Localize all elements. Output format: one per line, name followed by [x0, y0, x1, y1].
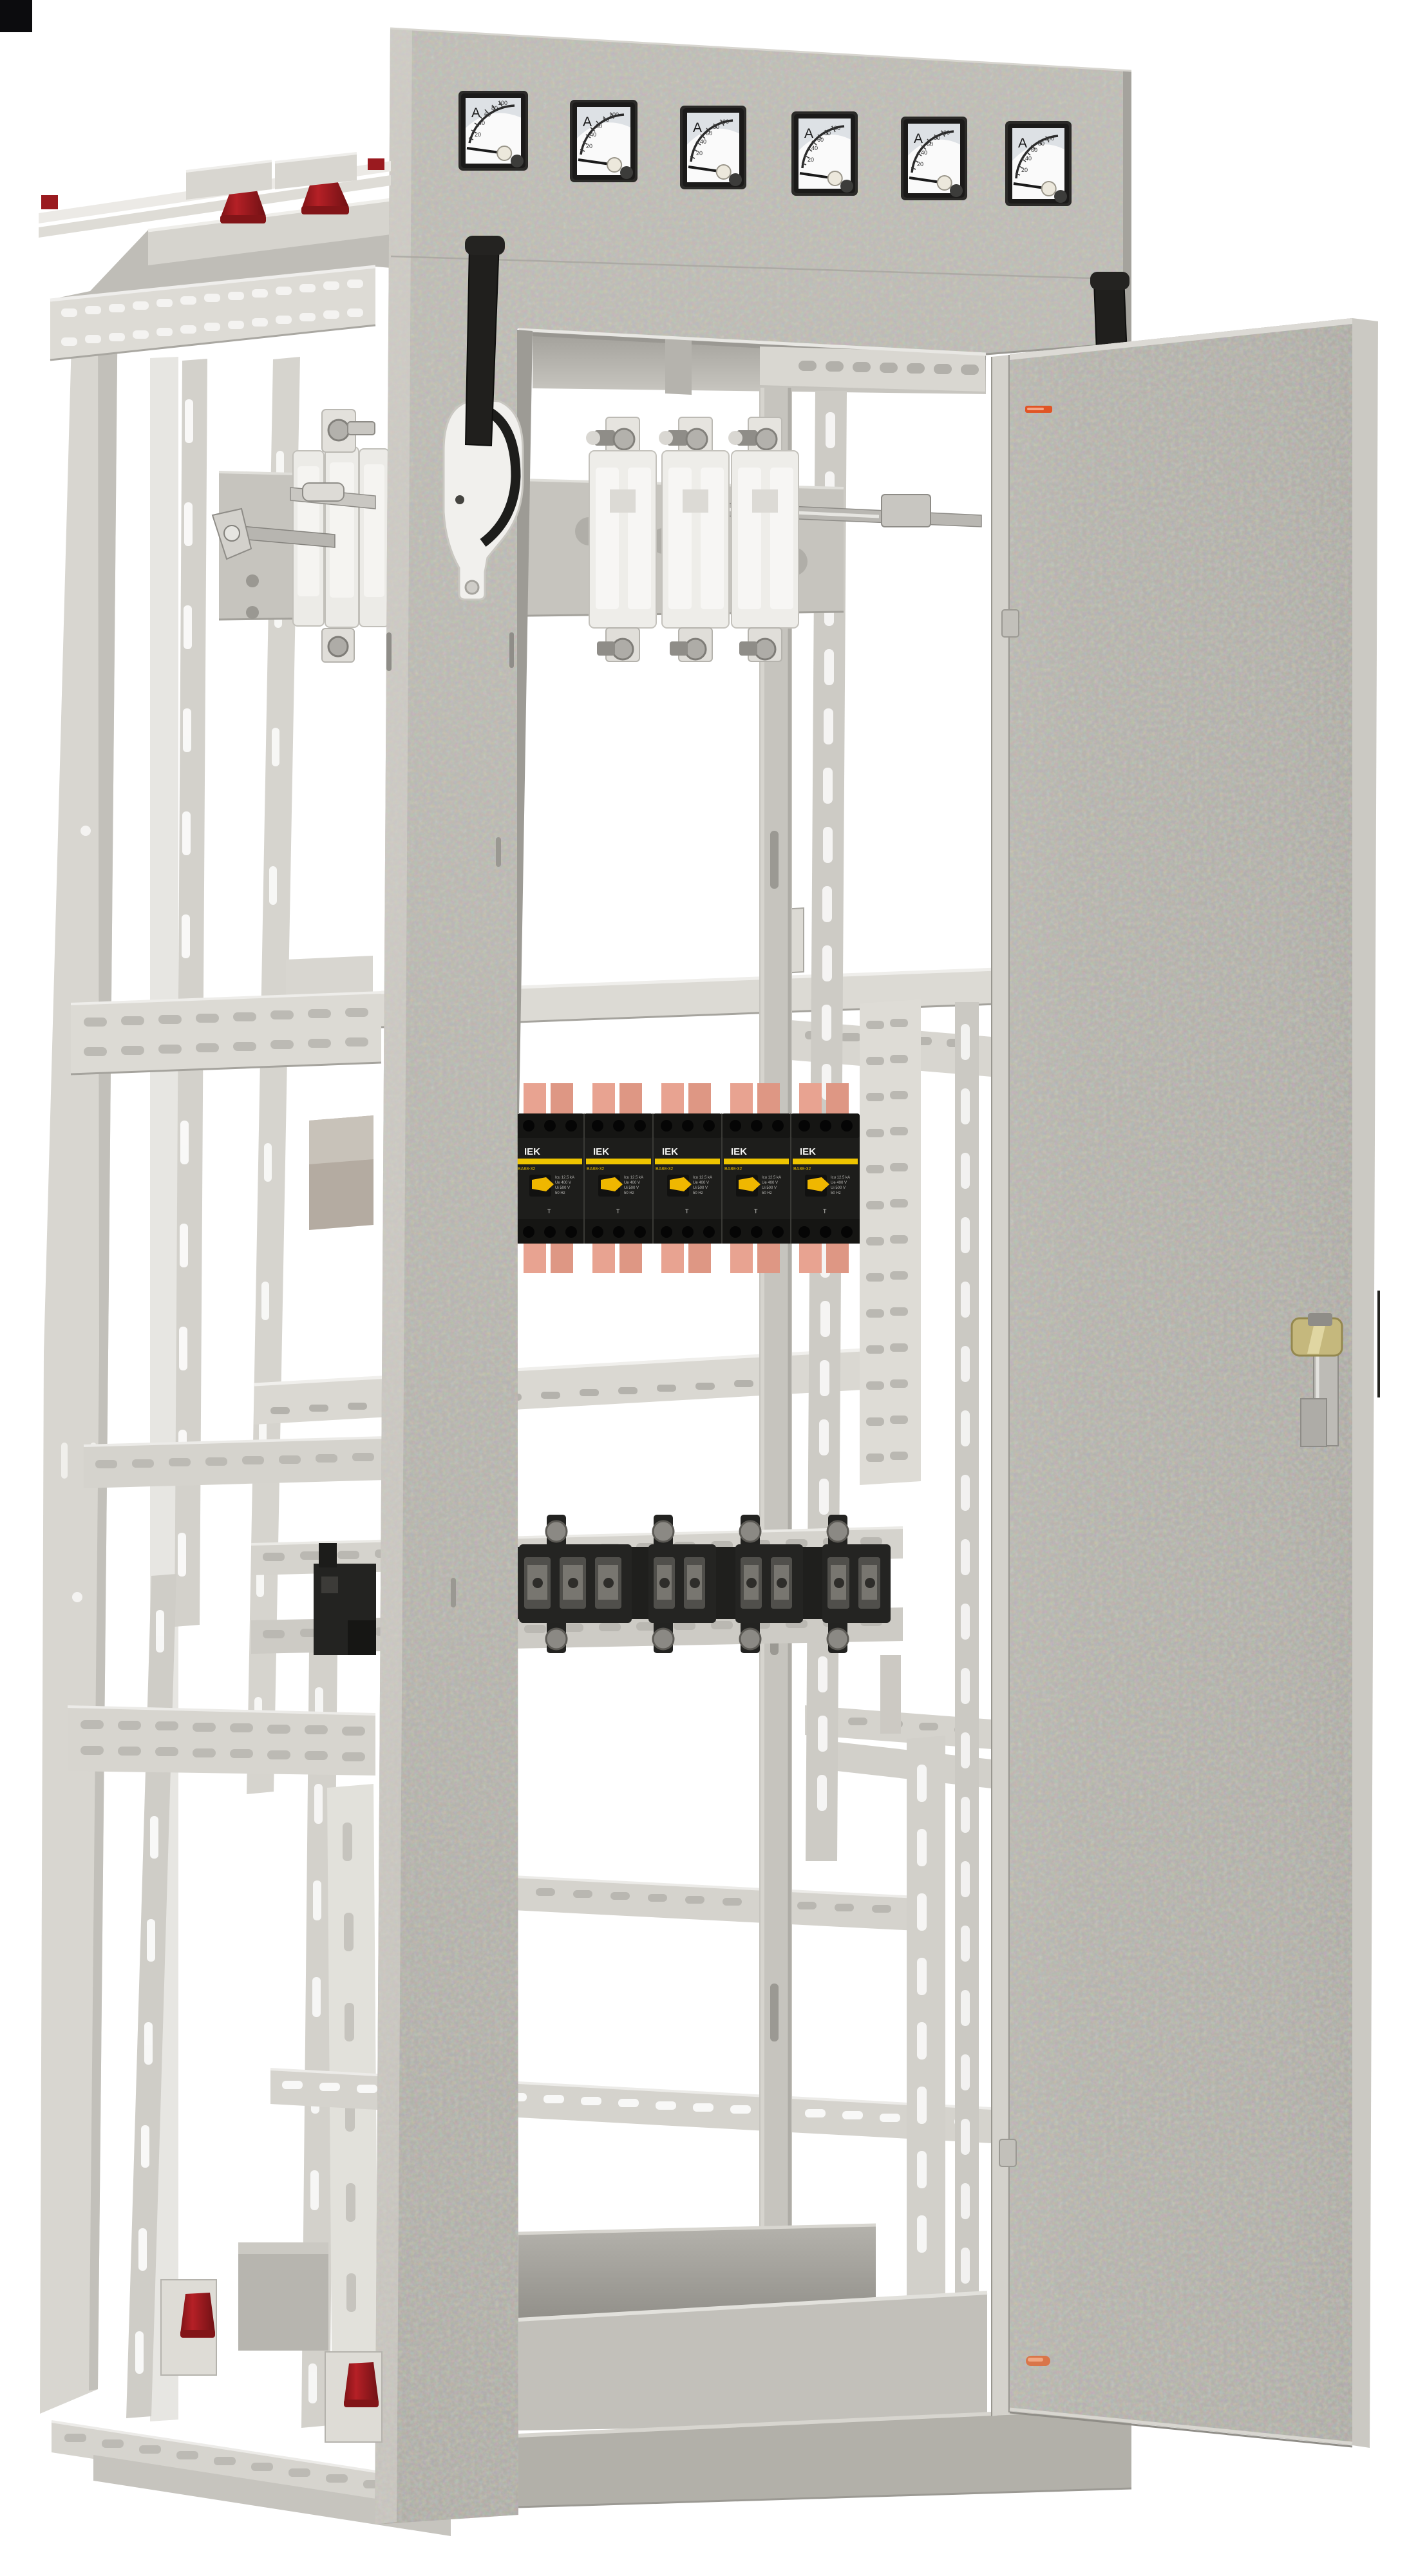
svg-text:Icu 12.5 kA: Icu 12.5 kA	[831, 1176, 850, 1180]
svg-text:T: T	[547, 1208, 551, 1215]
svg-text:60: 60	[706, 130, 712, 137]
svg-text:40: 40	[811, 145, 818, 151]
svg-text:BA88-32: BA88-32	[656, 1167, 673, 1171]
svg-text:T: T	[823, 1208, 827, 1215]
svg-text:60: 60	[817, 137, 824, 143]
svg-text:T: T	[616, 1208, 620, 1215]
svg-text:100: 100	[1044, 135, 1054, 142]
svg-text:Ui 500 V: Ui 500 V	[693, 1186, 708, 1190]
svg-text:80: 80	[603, 117, 609, 123]
svg-text:60: 60	[596, 123, 602, 129]
svg-text:20: 20	[696, 150, 703, 156]
svg-text:Icu 12.5 kA: Icu 12.5 kA	[693, 1176, 712, 1180]
svg-text:20: 20	[586, 143, 592, 149]
svg-text:T: T	[685, 1208, 689, 1215]
svg-text:A: A	[804, 126, 813, 141]
svg-text:40: 40	[700, 138, 706, 145]
svg-text:Ui 500 V: Ui 500 V	[762, 1186, 777, 1190]
svg-text:40: 40	[921, 149, 927, 156]
svg-text:60: 60	[927, 141, 933, 147]
svg-text:80: 80	[1038, 140, 1044, 147]
svg-text:100: 100	[719, 118, 729, 125]
svg-text:60: 60	[1031, 147, 1037, 153]
svg-text:Icu 12.5 kA: Icu 12.5 kA	[555, 1176, 574, 1180]
svg-text:20: 20	[917, 161, 923, 167]
svg-text:100: 100	[498, 100, 507, 106]
svg-text:40: 40	[1025, 155, 1032, 162]
svg-text:50 Hz: 50 Hz	[831, 1191, 841, 1195]
svg-text:IEK: IEK	[593, 1146, 609, 1157]
svg-text:IEK: IEK	[662, 1146, 678, 1157]
svg-text:Ui 500 V: Ui 500 V	[555, 1186, 570, 1190]
svg-text:BA88-32: BA88-32	[724, 1167, 742, 1171]
svg-text:20: 20	[808, 156, 814, 163]
svg-text:A: A	[1018, 136, 1027, 151]
svg-text:Icu 12.5 kA: Icu 12.5 kA	[624, 1176, 643, 1180]
svg-text:Ue 400 V: Ue 400 V	[693, 1181, 709, 1185]
svg-text:50 Hz: 50 Hz	[555, 1191, 565, 1195]
svg-text:Ue 400 V: Ue 400 V	[762, 1181, 778, 1185]
svg-text:Ue 400 V: Ue 400 V	[831, 1181, 847, 1185]
svg-text:40: 40	[478, 120, 485, 126]
svg-text:BA88-32: BA88-32	[587, 1167, 604, 1171]
svg-text:T: T	[754, 1208, 758, 1215]
svg-text:50 Hz: 50 Hz	[762, 1191, 772, 1195]
svg-text:Ue 400 V: Ue 400 V	[555, 1181, 571, 1185]
svg-text:IEK: IEK	[524, 1146, 540, 1157]
svg-text:40: 40	[590, 131, 596, 138]
svg-text:IEK: IEK	[731, 1146, 747, 1157]
svg-text:80: 80	[824, 130, 831, 137]
svg-text:100: 100	[609, 111, 619, 118]
svg-text:60: 60	[484, 111, 491, 118]
svg-text:Ui 500 V: Ui 500 V	[624, 1186, 639, 1190]
svg-text:100: 100	[940, 129, 950, 136]
svg-text:50 Hz: 50 Hz	[693, 1191, 703, 1195]
svg-text:BA88-32: BA88-32	[518, 1167, 535, 1171]
svg-text:A: A	[693, 120, 702, 135]
svg-text:A: A	[583, 115, 592, 129]
svg-text:80: 80	[934, 135, 940, 141]
svg-text:Icu 12.5 kA: Icu 12.5 kA	[762, 1176, 781, 1180]
svg-text:20: 20	[1021, 167, 1028, 173]
svg-text:20: 20	[475, 131, 481, 138]
svg-text:Ui 500 V: Ui 500 V	[831, 1186, 846, 1190]
svg-text:80: 80	[713, 124, 719, 130]
svg-text:100: 100	[831, 125, 840, 131]
svg-text:80: 80	[491, 105, 498, 111]
svg-text:A: A	[471, 106, 480, 120]
svg-text:A: A	[914, 131, 923, 146]
svg-text:Ue 400 V: Ue 400 V	[624, 1181, 640, 1185]
svg-text:IEK: IEK	[800, 1146, 816, 1157]
svg-text:BA88-32: BA88-32	[793, 1167, 811, 1171]
svg-text:50 Hz: 50 Hz	[624, 1191, 634, 1195]
